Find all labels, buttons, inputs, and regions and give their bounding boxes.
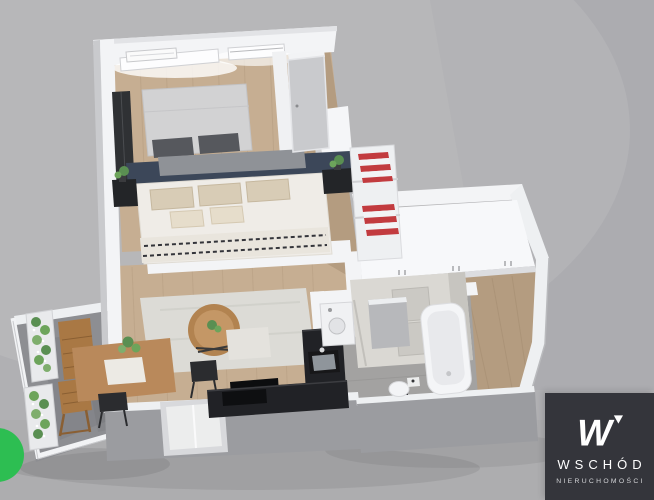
cooktop — [222, 389, 267, 406]
shower-partition — [368, 297, 410, 349]
bathtub — [420, 302, 473, 396]
ottoman — [226, 327, 271, 360]
hallway — [288, 50, 329, 152]
logo-company-subtitle: NIERUCHOMOŚCI — [554, 478, 644, 485]
towel-shelf — [350, 145, 402, 261]
watermark-logo: W WSCHÓD NIERUCHOMOŚCI — [545, 393, 654, 500]
striped-towels-top — [358, 152, 393, 183]
logo-monogram-icon: W — [570, 408, 630, 454]
double-bed — [136, 173, 332, 264]
washing-machine — [320, 302, 355, 346]
svg-text:W: W — [577, 413, 615, 454]
logo-company-name: WSCHÓD — [552, 458, 646, 472]
planter-box-lower — [24, 384, 58, 450]
hallway-wardrobe — [288, 56, 329, 152]
screenshot-root: W WSCHÓD NIERUCHOMOŚCI — [0, 0, 654, 500]
logo-triangle-accent — [613, 416, 622, 424]
single-bed — [142, 84, 252, 158]
striped-towels-bottom — [362, 204, 399, 236]
planter-box-upper — [26, 310, 58, 382]
